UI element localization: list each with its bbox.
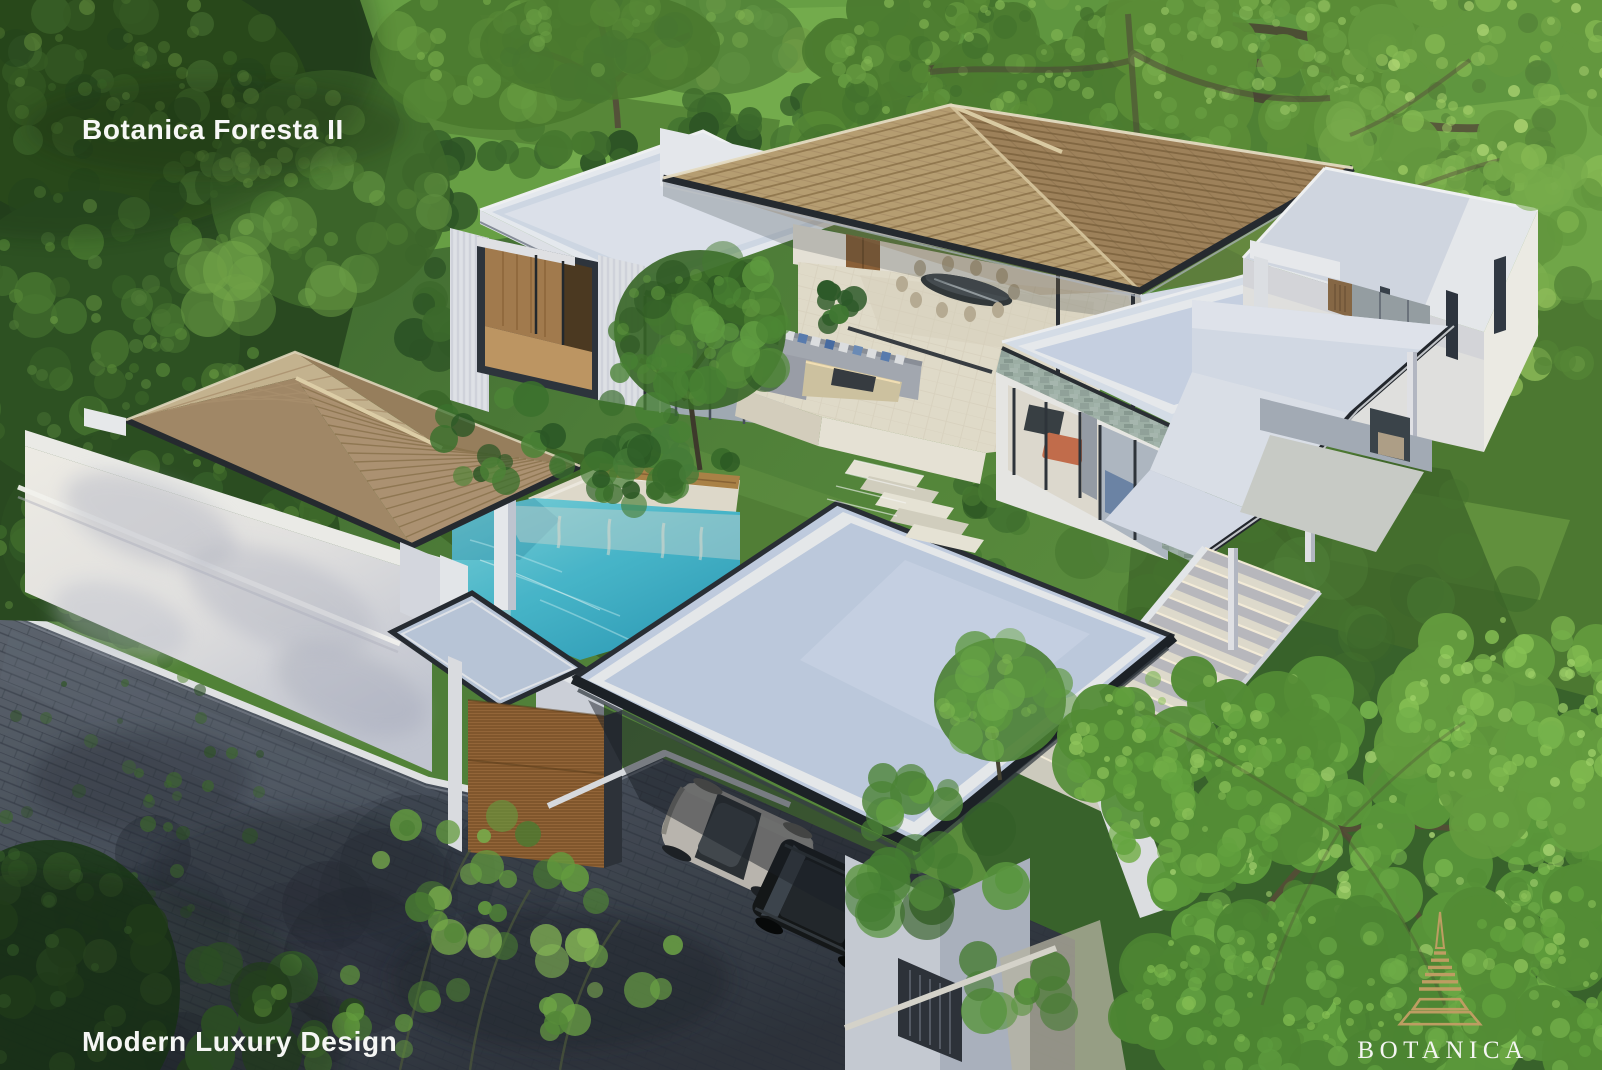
svg-text:Botanica Foresta II: Botanica Foresta II bbox=[82, 114, 344, 145]
svg-text:BOTANICA: BOTANICA bbox=[1357, 1037, 1528, 1064]
svg-text:Modern Luxury Design: Modern Luxury Design bbox=[82, 1026, 397, 1057]
